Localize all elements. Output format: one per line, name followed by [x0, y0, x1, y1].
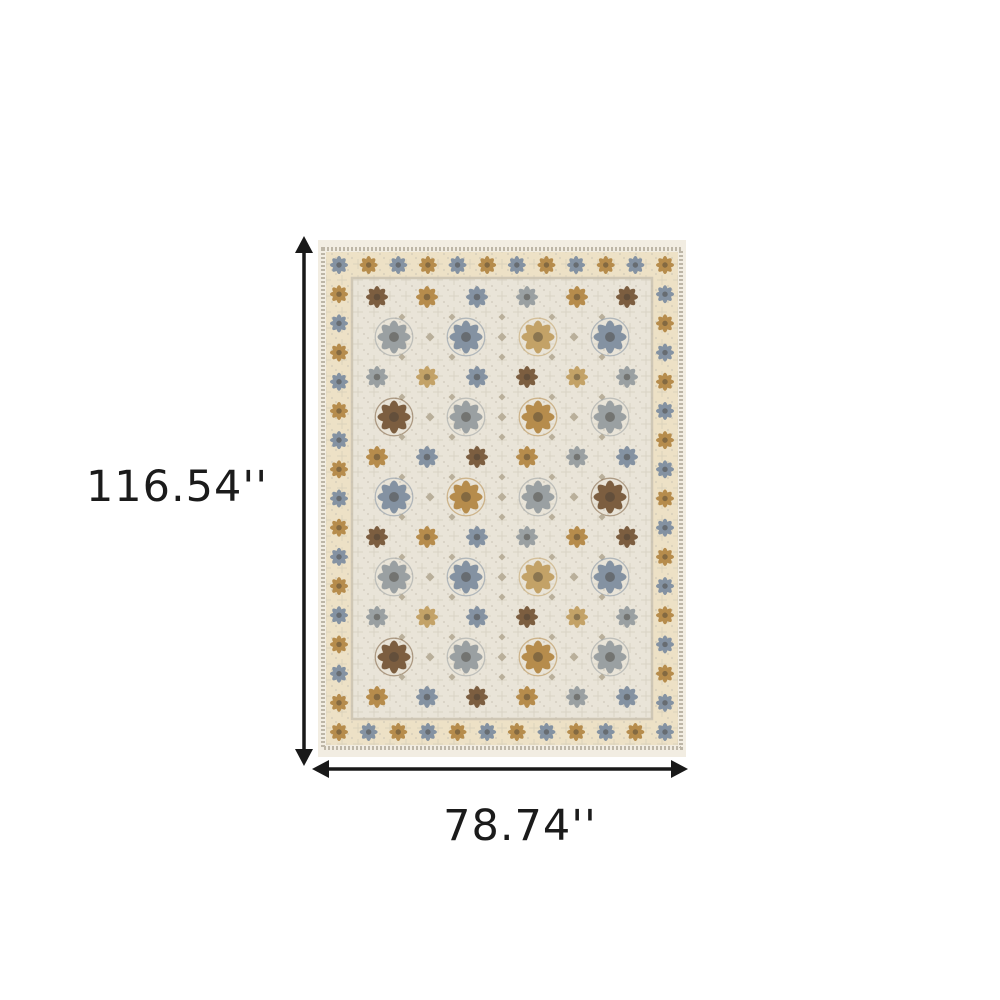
- arrowhead-right-icon: [671, 760, 688, 778]
- width-dimension-arrow: [310, 757, 690, 781]
- rug-graphic: [318, 240, 686, 757]
- height-dimension-label: 116.54'': [82, 462, 272, 512]
- height-dimension-arrow: [292, 236, 316, 766]
- rug-image: [318, 240, 686, 757]
- width-dimension-label: 78.74'': [425, 801, 615, 851]
- product-dimension-image: 116.54'' 78.74'': [0, 0, 1000, 1000]
